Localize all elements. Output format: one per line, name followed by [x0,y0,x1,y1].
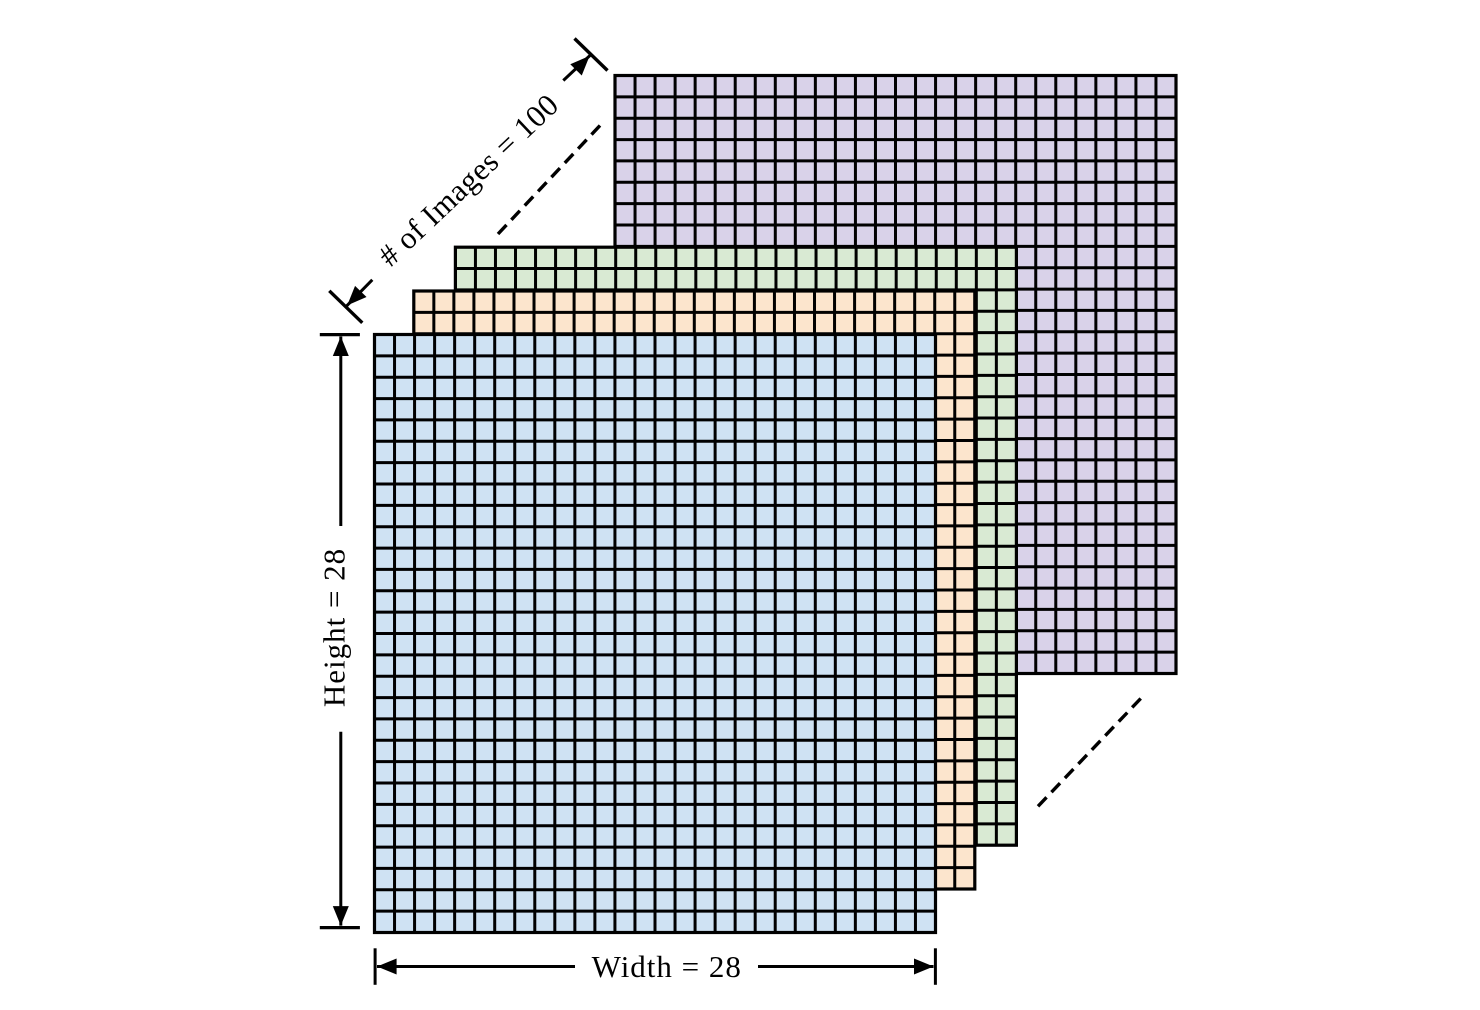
svg-text:Height = 28: Height = 28 [317,548,352,707]
svg-text:Width = 28: Width = 28 [592,949,742,984]
svg-text:# of Images = 100: # of Images = 100 [371,87,565,273]
